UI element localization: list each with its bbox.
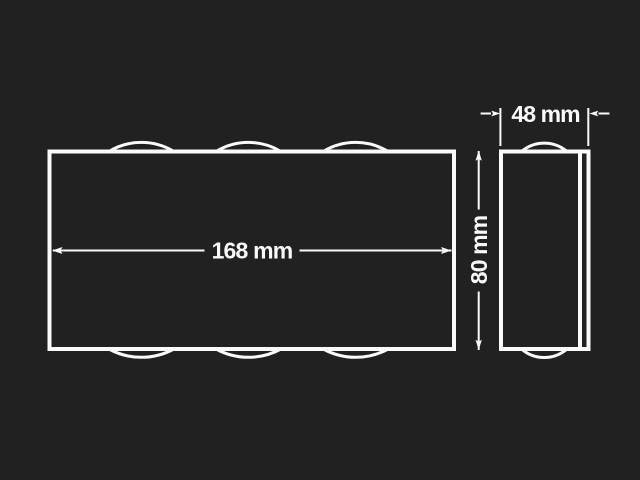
svg-text:80 mm: 80 mm xyxy=(466,215,492,284)
svg-text:48 mm: 48 mm xyxy=(511,101,580,127)
svg-text:168 mm: 168 mm xyxy=(212,238,293,264)
